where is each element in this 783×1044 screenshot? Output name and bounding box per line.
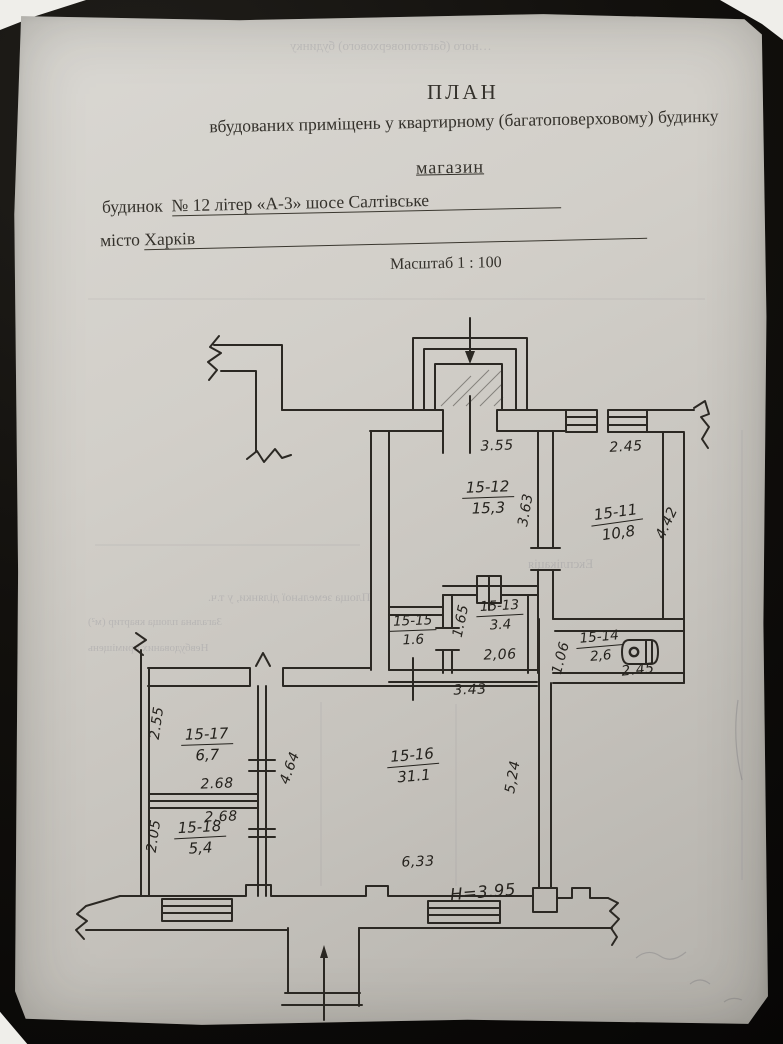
room-number: 15-15	[389, 612, 437, 632]
vestibule-walls	[413, 318, 527, 453]
dim-2-06: 2,06	[483, 646, 517, 663]
walls-group	[76, 318, 709, 1020]
room-area: 1.6	[389, 630, 437, 649]
ghost-table-lines	[88, 299, 742, 886]
dim-2-68-a: 2.68	[200, 775, 234, 792]
room-area: 15,3	[462, 497, 514, 518]
wall-1512-1511	[531, 431, 560, 619]
room-label-15-13: 15-13 3.4	[475, 597, 524, 634]
top-windows	[566, 410, 647, 432]
pencil-scribbles	[636, 700, 742, 1002]
entry-arrow-down-icon	[465, 351, 475, 364]
room-label-15-15: 15-15 1.6	[389, 612, 437, 649]
room-label-15-17: 15-17 6,7	[181, 724, 234, 765]
scanned-page-photo: …ного (багатоповерхового) будинку Експлі…	[0, 0, 783, 1044]
dim-2-68-b: 2.68	[204, 808, 238, 825]
room-label-15-11: 15-11 10,8	[589, 500, 646, 546]
page-content: …ного (багатоповерхового) будинку Експлі…	[0, 0, 783, 1044]
room-label-15-12: 15-12 15,3	[462, 477, 515, 518]
ghost-text: приміщення	[765, 677, 777, 734]
bottom-right-break	[608, 898, 619, 945]
dim-3-43: 3.43	[453, 681, 487, 698]
bottom-windows	[162, 899, 500, 923]
right-outer-wall	[663, 433, 684, 683]
dim-6-33: 6,33	[401, 853, 435, 870]
room-number: 15-12	[462, 477, 514, 499]
floor-plan: 15-12 15,3 15-11 10,8 15-13 3.4 15-15 1.…	[0, 0, 783, 1044]
room-label-15-14: 15-14 2,6	[575, 627, 625, 666]
document-paper: …ного (багатоповерхового) будинку Експлі…	[12, 10, 771, 1032]
room-area: 5,4	[174, 837, 227, 859]
wing-walls	[208, 336, 291, 462]
left-interior-wall	[371, 431, 389, 670]
room-number: 15-17	[181, 724, 233, 746]
dim-2-45-top: 2.45	[609, 438, 643, 456]
dim-3-55: 3.55	[480, 437, 514, 454]
hatch-lines	[441, 370, 503, 406]
entry-arrow-up-icon	[320, 945, 328, 958]
top-right-break	[694, 401, 709, 448]
room-label-15-16: 15-16 31.1	[386, 744, 441, 787]
room-area: 3.4	[476, 615, 524, 634]
porch-walls	[282, 928, 362, 1020]
bottom-left-break	[76, 896, 120, 939]
room-area: 6,7	[181, 744, 233, 765]
